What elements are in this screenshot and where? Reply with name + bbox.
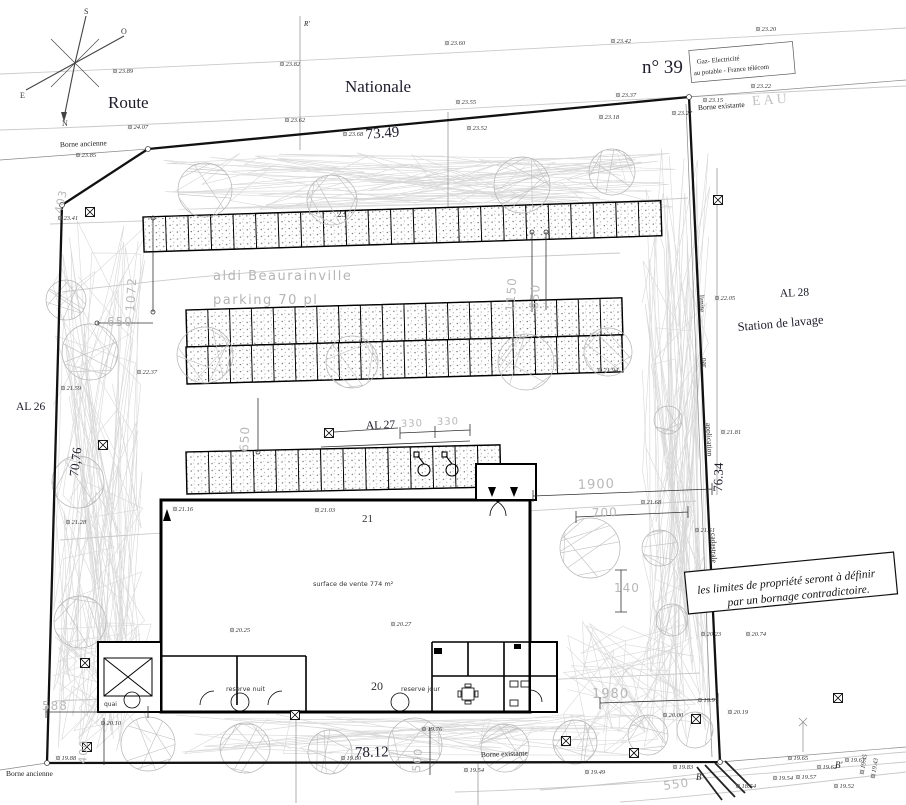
parking-stall xyxy=(278,212,302,248)
elevation-mark: 21.68 xyxy=(641,499,662,506)
parking-stall xyxy=(556,299,579,337)
elevation-mark: 23.18 xyxy=(599,114,620,121)
parking-stall xyxy=(469,338,492,376)
elevation-value: 20.00 xyxy=(669,712,684,719)
sales-area-label: surface de vente 774 m² xyxy=(313,580,394,588)
elevation-value: 19.76 xyxy=(428,726,443,733)
parking-stall xyxy=(404,303,427,341)
parking-stall xyxy=(426,340,449,378)
gray-dimension: 650 xyxy=(107,315,133,329)
parking-stall xyxy=(343,448,366,490)
elevation-value: 20.10 xyxy=(107,720,122,727)
elevation-value: 23.52 xyxy=(473,125,488,132)
parking-stall xyxy=(548,204,572,240)
gray-dimension: 400 xyxy=(76,739,91,764)
elevation-mark: 19.54 xyxy=(773,775,794,782)
elevation-value: 19.91 xyxy=(704,697,719,704)
elevation-value: 19.65 xyxy=(794,755,809,762)
parking-stall xyxy=(382,304,405,342)
parcel-label-al28: AL 28 xyxy=(780,286,810,300)
parking-stall xyxy=(339,342,362,380)
elevation-value: 21.28 xyxy=(72,519,87,526)
gray-dimension: 403 xyxy=(52,188,70,214)
project-name-line1: aldi Beaurainville xyxy=(213,269,352,284)
benchmark-square-icon xyxy=(562,737,571,746)
parking-stall xyxy=(368,209,392,245)
elevation-mark: 19.49 xyxy=(585,769,606,776)
borne-existante-top: Borne existante xyxy=(698,100,746,112)
eau-marking: EAU xyxy=(752,92,791,110)
parking-stall xyxy=(638,201,662,237)
compass-label-n: N xyxy=(62,119,68,128)
elevation-value: 23.55 xyxy=(462,99,477,106)
benchmark-square-icon xyxy=(81,659,90,668)
elevation-mark: 20.23 xyxy=(701,631,722,638)
elevation-value: 23.60 xyxy=(451,40,466,47)
elevation-mark: 23.68 xyxy=(343,131,364,138)
gray-dimension: 1072 xyxy=(123,277,139,312)
elevation-mark: 21.81 xyxy=(721,429,742,436)
parking-stall xyxy=(188,215,212,251)
elevation-mark: 23.20 xyxy=(756,26,777,33)
compass-label-o: O xyxy=(121,27,127,36)
parking-stall xyxy=(426,303,449,341)
elevation-value: 23.20 xyxy=(762,26,777,33)
parking-stall xyxy=(253,450,276,492)
elevation-value: 19.49 xyxy=(591,769,606,776)
parking-stall xyxy=(295,306,318,344)
parking-stall xyxy=(388,447,411,489)
parking-stall xyxy=(186,451,209,493)
parking-stall xyxy=(165,216,189,252)
elevation-mark: 22.05 xyxy=(715,295,736,302)
elevation-value: 19.45 xyxy=(860,753,870,769)
elevation-mark: 20.19 xyxy=(728,709,749,716)
benchmark-square-icon xyxy=(99,441,108,450)
parking-stall xyxy=(256,213,280,249)
elevation-value: 23.62 xyxy=(291,117,306,124)
building xyxy=(98,464,557,712)
parking-stall xyxy=(447,302,470,340)
contour-label: 23 xyxy=(337,209,347,219)
parking-stall xyxy=(469,301,492,339)
elevation-value: 23.85 xyxy=(82,152,97,159)
benchmark-square-icon xyxy=(291,711,300,720)
elevation-mark: 21.28 xyxy=(66,519,87,526)
parking-stall xyxy=(273,344,296,382)
benchmark-square-icon xyxy=(86,208,95,217)
elevation-value: 23.41 xyxy=(64,215,79,222)
gray-dimension: 588 xyxy=(42,699,68,713)
gray-dimension: 330 xyxy=(401,418,423,430)
parking-stall xyxy=(593,202,617,238)
parking-stall xyxy=(404,340,427,378)
parking-stall xyxy=(391,209,415,245)
elevation-value: 20.25 xyxy=(236,627,251,634)
parking-stall xyxy=(447,339,470,377)
elevation-mark: 23.22 xyxy=(751,83,772,90)
parking-stall xyxy=(251,345,274,383)
reserve-jour-label: reserve jour xyxy=(401,685,440,693)
parking-stall xyxy=(458,206,482,242)
elevation-mark: 19.54 xyxy=(464,767,485,774)
elevation-value: 23.27 xyxy=(678,110,693,117)
parking-stall xyxy=(295,343,318,381)
station-lavage-label: Station de lavage xyxy=(737,312,824,333)
section-mark-b: B xyxy=(696,772,702,782)
elevation-mark: 22.37 xyxy=(137,369,158,376)
section-mark-r-prime: R' xyxy=(303,20,310,28)
gray-dimension: 700 xyxy=(592,505,618,520)
parking-stall xyxy=(321,448,344,490)
elevation-mark: 23.62 xyxy=(285,117,306,124)
elevation-value: 21.59 xyxy=(67,385,82,392)
road-label-route: Route xyxy=(108,93,149,112)
section-mark-b-prime: B' xyxy=(835,760,843,770)
benchmark-square-icon xyxy=(834,694,843,703)
elevation-mark: 23.27 xyxy=(672,110,693,117)
elevation-value: 19.54 xyxy=(779,775,794,782)
elevation-value: 24.07 xyxy=(134,124,149,131)
parking-stall xyxy=(298,449,321,491)
tree-symbol xyxy=(560,518,620,578)
gray-dimension: 140 xyxy=(614,581,640,595)
parking-stall xyxy=(143,216,167,252)
cadastral-word-application: application xyxy=(704,423,715,457)
elevation-mark: 23.55 xyxy=(456,99,477,106)
elevation-mark: 19.88 xyxy=(56,755,77,762)
project-name-line2: parking 70 pl xyxy=(213,293,318,308)
elevation-value: 21.81 xyxy=(727,429,742,436)
parking-row xyxy=(186,445,501,494)
boundary-dim-bottom: 78.12 xyxy=(355,744,389,761)
elevation-value: 21.94 xyxy=(604,367,619,374)
parcel-label-al27: AL 27 xyxy=(366,419,396,432)
gray-dimension: 550 xyxy=(662,776,690,793)
cadastral-word-limite: limite xyxy=(697,295,707,314)
elevation-mark: 19.57 xyxy=(796,774,817,781)
elevation-value: 19.83 xyxy=(679,764,694,771)
parking-stall xyxy=(616,201,640,237)
parking-stall xyxy=(276,449,299,491)
elevation-value: 22.05 xyxy=(721,295,736,302)
elevation-value: 18.54 xyxy=(742,783,757,790)
gray-dimension: 650 xyxy=(527,283,543,310)
elevation-mark: 23.52 xyxy=(467,125,488,132)
parking-stall xyxy=(301,211,325,247)
borne-ancienne-bottom: Borne ancienne xyxy=(6,769,54,778)
parking-stall xyxy=(317,343,340,381)
elevation-value: 21.03 xyxy=(321,507,336,514)
elevation-value: 19.52 xyxy=(840,783,855,790)
gray-dimension: 500 xyxy=(410,747,425,772)
elevation-value: 20.23 xyxy=(707,631,722,638)
boundary-dim-right: 76.34 xyxy=(710,462,726,492)
elevation-value: 19.43 xyxy=(871,757,881,773)
parking-rows xyxy=(143,201,662,494)
parcel-label-n39: n° 39 xyxy=(642,57,683,78)
parking-stall xyxy=(382,341,405,379)
parking-stall xyxy=(413,208,437,244)
elevation-mark: 23.37 xyxy=(616,92,637,99)
elevation-value: 23.89 xyxy=(119,68,134,75)
parking-stall xyxy=(481,206,505,242)
benchmark-square-icon xyxy=(714,196,723,205)
gray-dimension: 1900 xyxy=(578,477,616,493)
parking-stall xyxy=(365,447,388,489)
parking-stall xyxy=(556,336,579,374)
elevation-value: 21.16 xyxy=(179,506,194,513)
benchmark-square-icon xyxy=(692,715,701,724)
parking-stall xyxy=(503,205,527,241)
elevation-value: 19.88 xyxy=(62,755,77,762)
elevation-value: 23.22 xyxy=(757,83,772,90)
contour-label: 21 xyxy=(362,513,373,525)
cadastral-word-par: par xyxy=(700,358,710,369)
parking-stall xyxy=(339,305,362,343)
parking-stall xyxy=(571,203,595,239)
parking-stall xyxy=(231,450,254,492)
site-plan-canvas: 23.8923.8224.0723.8523.6023.6223.6823.55… xyxy=(0,0,906,805)
parking-stall xyxy=(346,210,370,246)
elevation-value: 21.68 xyxy=(647,499,662,506)
elevation-mark: 19.83 xyxy=(673,764,694,771)
gray-dimension: 650 xyxy=(237,426,252,453)
parking-stall xyxy=(273,307,296,345)
gray-dimension: 1980 xyxy=(592,687,629,702)
road-label-nationale: Nationale xyxy=(345,77,411,96)
tree-symbol xyxy=(62,324,118,380)
cadastral-word-cadastrale: cadastrale xyxy=(709,533,719,564)
reserve-nuit-label: reserve nuit xyxy=(226,685,266,693)
boundary-dim-left: 70,76 xyxy=(66,446,85,477)
parcel-label-al26: AL 26 xyxy=(16,401,46,413)
elevation-mark: 23.82 xyxy=(280,61,301,68)
elevation-mark: 23.85 xyxy=(76,152,97,159)
quai-label: quai xyxy=(104,701,117,708)
parking-stall xyxy=(436,207,460,243)
parking-stall xyxy=(455,445,478,487)
parking-stall xyxy=(600,298,623,336)
elevation-value: 20.19 xyxy=(734,709,749,716)
parking-stall xyxy=(211,214,235,250)
boundary-dim-top: 73.49 xyxy=(365,124,400,143)
elevation-value: 22.37 xyxy=(143,369,158,376)
elevation-mark: 19.43 xyxy=(870,757,881,779)
parking-stall xyxy=(208,451,231,493)
gray-dimension: 330 xyxy=(437,416,459,428)
borne-existante-bottom: Borne existante xyxy=(481,748,529,759)
parking-stall xyxy=(317,306,340,344)
parking-stall xyxy=(360,305,383,343)
elevation-value: 23.18 xyxy=(605,114,620,121)
gray-dimension: 1150 xyxy=(503,277,519,312)
elevation-value: 19.54 xyxy=(470,767,485,774)
entrance-vestibule xyxy=(476,464,536,500)
elevation-mark: 23.60 xyxy=(445,40,466,47)
elevation-value: 23.68 xyxy=(349,131,364,138)
borne-ancienne-top: Borne ancienne xyxy=(60,138,108,149)
parking-stall xyxy=(251,308,274,346)
elevation-value: 23.37 xyxy=(622,92,637,99)
parking-stall xyxy=(360,342,383,380)
parking-stall xyxy=(230,308,253,346)
tree-symbol xyxy=(553,720,597,764)
benchmark-square-icon xyxy=(325,429,334,438)
elevation-mark: 20.74 xyxy=(746,631,767,638)
elevation-value: 20.27 xyxy=(397,621,412,628)
elevation-value: 23.82 xyxy=(286,61,301,68)
parking-stall xyxy=(233,213,257,249)
elevation-value: 20.74 xyxy=(752,631,767,638)
elevation-mark: 19.52 xyxy=(834,783,855,790)
compass-label-s: S xyxy=(84,7,88,16)
scribble xyxy=(167,153,670,205)
elevation-value: 19.57 xyxy=(802,774,817,781)
elevation-value: 23.42 xyxy=(617,38,632,45)
benchmark-square-icon xyxy=(630,749,639,758)
contour-label: 20 xyxy=(371,679,383,693)
compass-label-e: E xyxy=(20,91,25,100)
